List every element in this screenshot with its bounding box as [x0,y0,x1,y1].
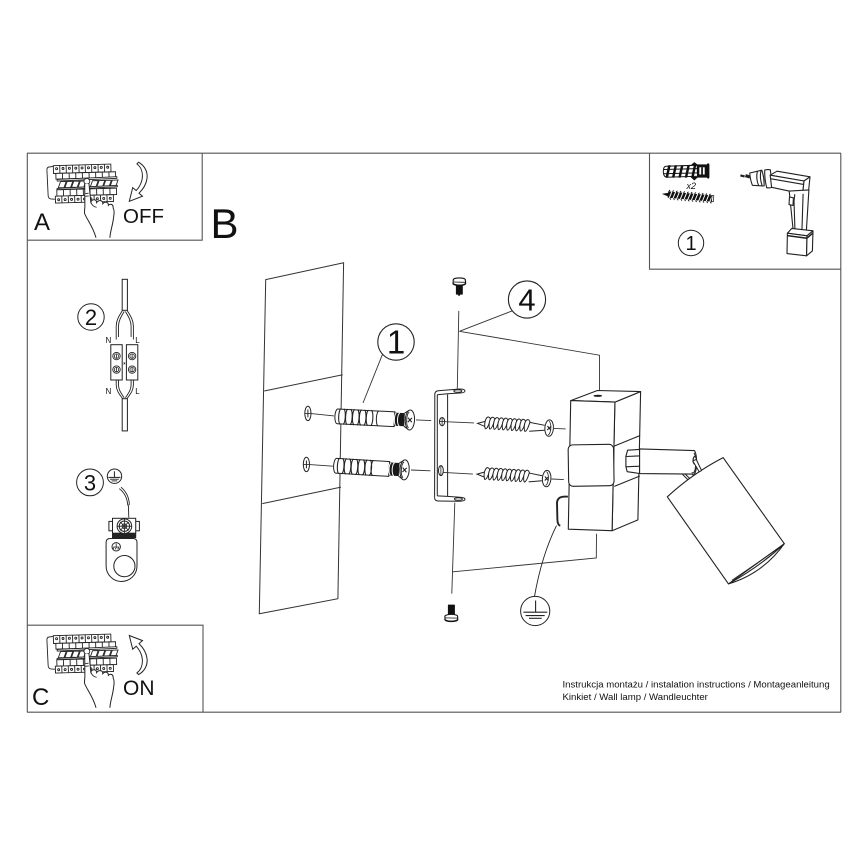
svg-text:B: B [211,200,239,247]
svg-text:1: 1 [685,233,696,255]
svg-text:x2: x2 [686,181,697,191]
svg-text:1: 1 [387,324,405,361]
svg-text:Kinkiet / Wall lamp / Wandleuc: Kinkiet / Wall lamp / Wandleuchter [563,692,709,703]
svg-text:N: N [106,336,112,345]
svg-text:ON: ON [123,677,155,700]
svg-text:Instrukcja montażu / instalati: Instrukcja montażu / instalation instruc… [563,680,830,691]
svg-text:2: 2 [85,305,97,330]
svg-text:3: 3 [84,471,96,496]
svg-text:C: C [32,684,49,711]
svg-text:A: A [34,209,50,236]
svg-text:N: N [106,387,112,396]
svg-text:OFF: OFF [123,205,164,228]
svg-text:4: 4 [518,283,535,318]
svg-text:L: L [135,387,140,396]
svg-text:L: L [135,336,140,345]
